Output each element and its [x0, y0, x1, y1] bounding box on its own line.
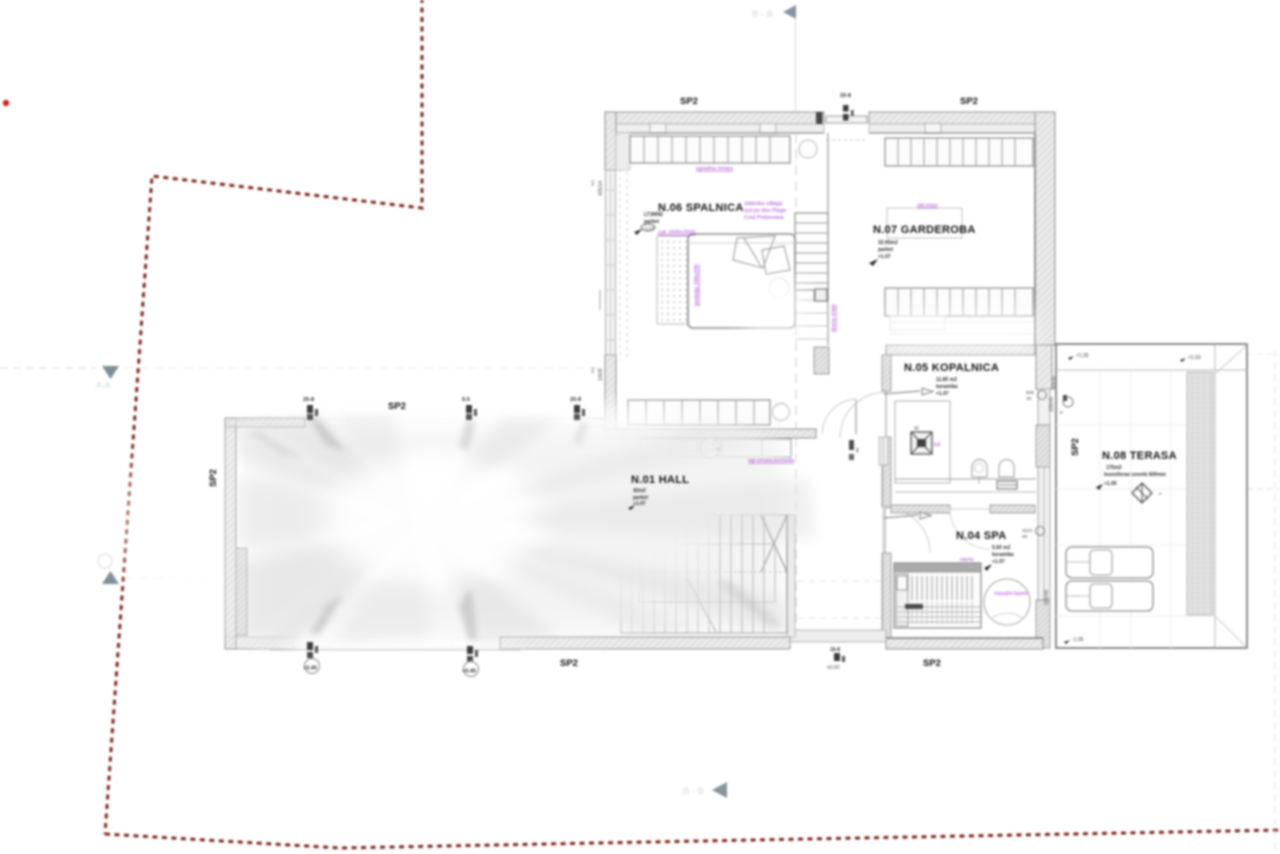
svg-text:20-8: 20-8	[840, 93, 851, 99]
svg-text:+1.07: +1.07	[633, 501, 646, 507]
svg-text:+: +	[1158, 491, 1162, 498]
svg-text:N.06 SPALNICA: N.06 SPALNICA	[658, 202, 744, 214]
svg-text:B - B: B - B	[752, 9, 773, 19]
svg-text:405/14: 405/14	[598, 180, 604, 196]
svg-text:105/40: 105/40	[1044, 589, 1050, 605]
svg-text:±0.00: ±0.00	[827, 665, 840, 671]
svg-text:lesen/teras vzorèk 600mm: lesen/teras vzorèk 600mm	[1104, 472, 1167, 478]
svg-text:+1.07: +1.07	[992, 559, 1005, 565]
svg-text:5.50 m2: 5.50 m2	[992, 545, 1011, 551]
svg-text:m1: m1	[590, 179, 595, 186]
svg-text:N.04 SPA: N.04 SPA	[956, 530, 1007, 542]
svg-text:+1.07: +1.07	[878, 254, 891, 260]
svg-text:parket: parket	[878, 247, 893, 253]
svg-text:A-A: A-A	[96, 381, 110, 390]
svg-text:SP2: SP2	[208, 469, 219, 487]
svg-text:obl.miza: obl.miza	[917, 203, 938, 209]
svg-text:2: 2	[856, 448, 859, 454]
svg-text:SP2: SP2	[923, 658, 941, 669]
svg-text:W: W	[914, 426, 919, 432]
svg-text:16-8: 16-8	[830, 647, 840, 653]
svg-text:keramika: keramika	[992, 552, 1014, 558]
svg-text:40: 40	[1026, 396, 1032, 402]
svg-text:40: 40	[1022, 534, 1028, 540]
svg-text:vgr.omara-komoda: vgr.omara-komoda	[748, 458, 795, 464]
svg-text:masažni bazen: masažni bazen	[994, 591, 1028, 597]
svg-text:908/40: 908/40	[1051, 376, 1056, 390]
svg-text:SP2: SP2	[560, 658, 578, 669]
svg-text:B - B: B - B	[683, 786, 704, 796]
svg-text:+0.45: +0.45	[303, 666, 317, 672]
svg-text:140/8: 140/8	[598, 368, 604, 381]
svg-text:N.01 HALL: N.01 HALL	[631, 474, 689, 486]
svg-text:+1.07: +1.07	[936, 391, 949, 397]
svg-text:20-8: 20-8	[570, 397, 581, 403]
svg-text:175m2: 175m2	[1106, 465, 1122, 471]
svg-text:Cost Prebovana: Cost Prebovana	[744, 215, 784, 221]
svg-text:zak.1600x2000: zak.1600x2000	[658, 230, 695, 236]
svg-text:N.08 TERASA: N.08 TERASA	[1102, 450, 1177, 462]
svg-text:SP2: SP2	[680, 96, 698, 107]
svg-text:N.05 KOPALNICA: N.05 KOPALNICA	[904, 362, 999, 374]
svg-text:zidarska vdlaga: zidarska vdlaga	[744, 201, 783, 207]
svg-text:drsna vrata: drsna vrata	[831, 304, 837, 332]
svg-text:-1.05: -1.05	[1072, 637, 1084, 643]
svg-text:32.65m2: 32.65m2	[878, 240, 898, 246]
svg-text:+0.45: +0.45	[462, 669, 476, 675]
svg-text:savna: savna	[960, 557, 974, 563]
svg-text:11.85 m2: 11.85 m2	[936, 377, 957, 383]
svg-text:vgradna omara: vgradna omara	[696, 166, 734, 172]
svg-text:LT39IN2: LT39IN2	[644, 212, 663, 218]
svg-text:tuš: tuš	[934, 442, 941, 448]
svg-text:SP2: SP2	[388, 401, 406, 412]
svg-text:42m2: 42m2	[633, 488, 646, 494]
svg-text:N.07 GARDEROBA: N.07 GARDEROBA	[873, 224, 976, 236]
svg-text:+1.07: +1.07	[643, 226, 655, 231]
svg-text:+1.05: +1.05	[1076, 353, 1089, 359]
svg-text:m1: m1	[590, 366, 595, 373]
svg-text:3221: 3221	[1022, 528, 1033, 534]
svg-text:postelja 180x200: postelja 180x200	[694, 264, 700, 306]
svg-text:908: 908	[1026, 390, 1034, 396]
svg-text:105/40: 105/40	[1049, 396, 1055, 412]
svg-text:5-5: 5-5	[462, 397, 470, 403]
svg-text:+1.03: +1.03	[1188, 355, 1201, 361]
svg-text:20-8: 20-8	[303, 397, 314, 403]
svg-text:+1.05: +1.05	[1104, 481, 1117, 487]
svg-text:keramika: keramika	[936, 384, 958, 390]
svg-text:izol po dno Plage: izol po dno Plage	[744, 208, 786, 214]
svg-text:SP2: SP2	[960, 96, 978, 107]
svg-text:SP2: SP2	[1070, 438, 1081, 456]
